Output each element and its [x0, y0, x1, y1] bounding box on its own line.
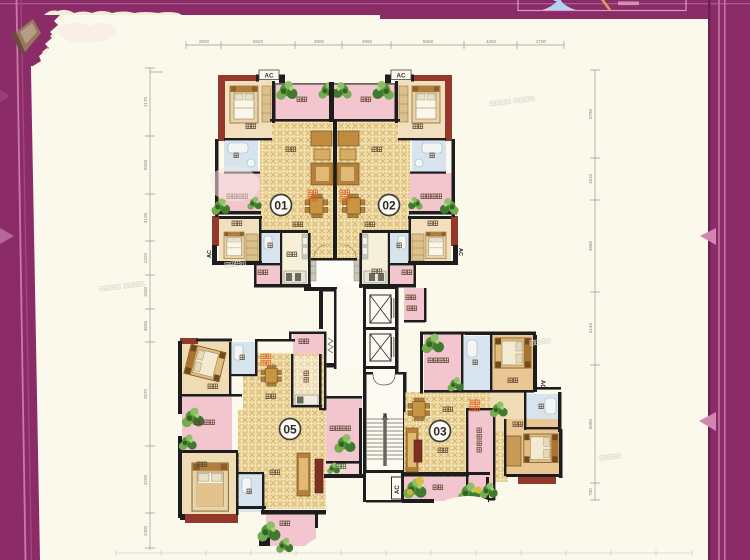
svg-text:5920: 5920 [253, 39, 264, 44]
svg-text:3600: 3600 [143, 320, 148, 331]
svg-text:3960: 3960 [588, 240, 593, 251]
svg-text:03: 03 [433, 425, 447, 439]
svg-text:AC: AC [395, 485, 401, 494]
svg-text:AC: AC [397, 73, 406, 80]
svg-text:3140: 3140 [588, 322, 593, 333]
svg-text:4250: 4250 [486, 39, 497, 44]
svg-text:2170: 2170 [143, 96, 148, 107]
svg-text:3790: 3790 [536, 39, 547, 44]
svg-text:3100: 3100 [143, 212, 148, 223]
svg-text:750: 750 [588, 488, 593, 496]
svg-text:02: 02 [382, 199, 396, 213]
svg-text:2920: 2920 [199, 39, 210, 44]
svg-text:5080: 5080 [588, 418, 593, 429]
svg-text:2870: 2870 [143, 388, 148, 399]
svg-text:5903: 5903 [143, 159, 148, 170]
svg-text:4200: 4200 [143, 474, 148, 485]
svg-text:5908: 5908 [423, 39, 434, 44]
svg-text:AC: AC [539, 380, 545, 389]
svg-text:3800: 3800 [314, 39, 325, 44]
svg-text:3780: 3780 [588, 108, 593, 119]
svg-text:AC: AC [265, 73, 274, 80]
svg-text:2400: 2400 [143, 525, 148, 536]
svg-text:3960: 3960 [362, 39, 373, 44]
svg-text:1500: 1500 [143, 286, 148, 297]
svg-text:2320: 2320 [143, 252, 148, 263]
svg-text:1810: 1810 [588, 173, 593, 184]
svg-text:AC: AC [207, 250, 213, 258]
svg-text:AC: AC [457, 248, 463, 256]
svg-text:01: 01 [274, 199, 288, 213]
svg-text:05: 05 [283, 423, 297, 437]
